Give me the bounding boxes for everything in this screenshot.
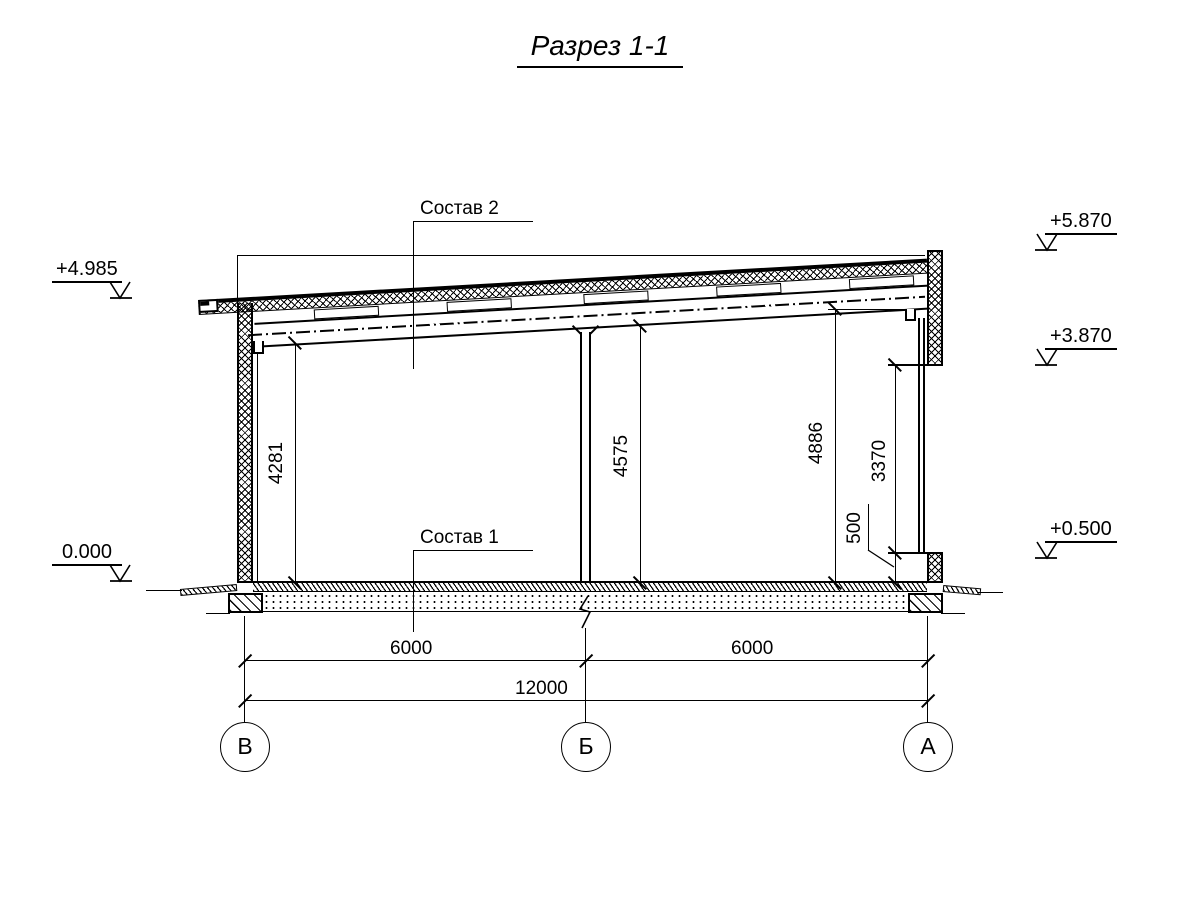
right-ground-line <box>941 613 965 614</box>
elevation-arrow-icon <box>106 564 134 583</box>
dim-line-4281 <box>295 343 296 583</box>
axis-bubble-v: В <box>220 722 270 772</box>
left-wall <box>237 303 253 583</box>
elevation-arrow-icon <box>1033 541 1061 560</box>
dim-line-12000 <box>244 700 928 701</box>
axis-label-v: В <box>237 733 252 759</box>
left-wall-top-extension <box>237 255 238 303</box>
roof-callout-shelf <box>413 221 533 222</box>
floor-callout-leader <box>413 550 414 632</box>
left-beam-corbel <box>253 341 264 354</box>
axis-extension-a <box>927 616 928 722</box>
roof-callout-leader <box>413 221 414 369</box>
dim-label-6000-left: 6000 <box>390 638 432 660</box>
elevation-label: +0.500 <box>1050 518 1112 541</box>
left-apron-edge-line <box>146 590 182 591</box>
roof-assembly <box>198 259 930 353</box>
fascia-fill <box>200 301 209 306</box>
dim-label-4886: 4886 <box>806 398 828 488</box>
column-left-line <box>580 332 582 583</box>
left-ground-line <box>206 613 230 614</box>
left-foundation-block <box>228 593 263 613</box>
floor-underlay-layer <box>263 593 908 612</box>
axis-extension-b <box>585 628 586 722</box>
right-apron <box>943 585 981 595</box>
dim-label-4281: 4281 <box>266 418 288 508</box>
window-glazing-line <box>918 318 920 553</box>
elevation-label: +4.985 <box>56 258 118 281</box>
dim-500-leader-shelf <box>868 504 869 551</box>
left-wall-inner-line <box>257 348 258 583</box>
elevation-arrow-icon <box>1033 233 1061 252</box>
right-beam-corbel <box>905 309 916 321</box>
right-wall-sill <box>927 553 943 583</box>
floor-screed-layer <box>253 583 927 592</box>
dim-label-12000: 12000 <box>515 678 568 700</box>
floor-composition-callout: Состав 1 <box>420 527 499 549</box>
drawing-title: Разрез 1-1 <box>517 30 684 68</box>
elevation-arrow-icon <box>106 281 134 300</box>
roof-composition-callout: Состав 2 <box>420 198 499 220</box>
window-glazing-line <box>923 318 925 553</box>
dim-line-3370 <box>895 365 896 553</box>
dim-label-3370: 3370 <box>869 416 891 506</box>
elevation-arrow-icon <box>1033 348 1061 367</box>
dim-500-leader <box>868 550 896 570</box>
axis-label-b: Б <box>578 733 593 759</box>
right-wall-upper <box>927 250 943 365</box>
right-foundation-block <box>908 593 943 613</box>
dim-label-6000-right: 6000 <box>731 638 773 660</box>
axis-bubble-a: А <box>903 722 953 772</box>
fascia-board <box>198 299 219 313</box>
dim-ext-4886-top <box>828 309 905 310</box>
elevation-label: +3.870 <box>1050 325 1112 348</box>
dim-line-4575 <box>640 326 641 583</box>
elevation-label: 0.000 <box>62 541 112 564</box>
axis-extension-v <box>244 616 245 722</box>
dim-line-4886 <box>835 309 836 583</box>
drawing-sheet: Разрез 1-1 <box>0 0 1200 900</box>
elevation-label: +5.870 <box>1050 210 1112 233</box>
right-apron-edge-line <box>978 592 1003 593</box>
axis-bubble-b: Б <box>561 722 611 772</box>
axis-label-a: А <box>920 733 935 759</box>
floor-callout-shelf <box>413 550 533 551</box>
column-right-line <box>589 332 591 583</box>
top-reference-line <box>237 255 925 256</box>
title-block: Разрез 1-1 <box>0 30 1200 68</box>
dim-label-4575: 4575 <box>611 411 633 501</box>
dim-label-500: 500 <box>844 483 866 573</box>
